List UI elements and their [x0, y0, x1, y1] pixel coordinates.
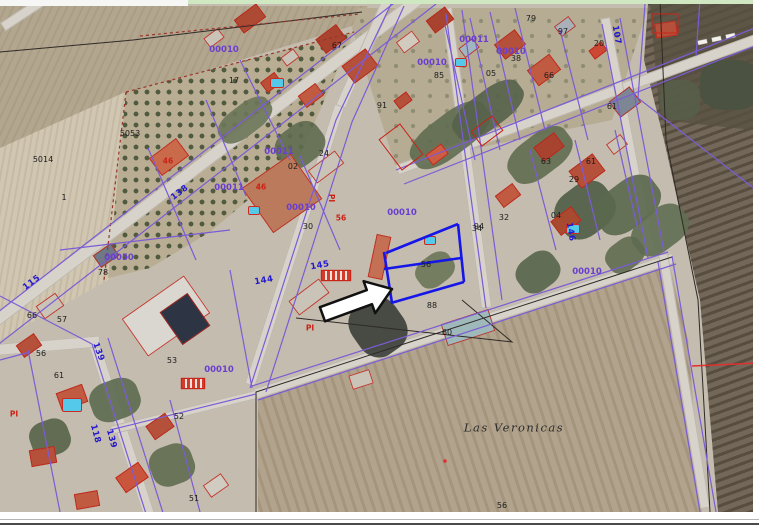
top-green-strip [188, 0, 753, 4]
map-label-56: 56 [421, 261, 431, 269]
map-label-las-veronicas: Las Veronicas [464, 422, 564, 434]
map-label-60: 60 [442, 329, 452, 337]
map-label-78: 78 [98, 269, 108, 277]
map-label-51: 51 [189, 495, 199, 503]
map-label-5053: 5053 [120, 130, 140, 138]
map-label-00011: 00011 [214, 184, 244, 193]
map-label-00011: 00011 [264, 148, 294, 157]
map-label-61: 61 [586, 158, 596, 166]
map-label-02: 02 [288, 163, 298, 171]
map-label-00010: 00010 [286, 204, 316, 213]
map-label-63: 63 [541, 158, 551, 166]
map-label-66: 66 [27, 312, 37, 320]
map-label-00050: 00050 [104, 254, 134, 263]
map-label-97: 97 [558, 28, 568, 36]
pointer-arrow [320, 281, 392, 321]
map-label-67: 67 [332, 42, 342, 50]
bottom-rule-light [0, 519, 759, 520]
map-label-32: 32 [499, 214, 509, 222]
map-label-91: 91 [377, 102, 387, 110]
map-label-pi: PI [327, 194, 335, 202]
top-white-strip [0, 0, 188, 6]
map-label-30: 30 [303, 223, 313, 231]
map-label-61: 61 [607, 103, 617, 111]
map-label-66: 66 [544, 72, 554, 80]
map-label-00010: 00010 [496, 48, 526, 57]
map-label-05: 05 [486, 70, 496, 78]
map-label-56: 56 [336, 214, 346, 222]
map-label-24: 24 [319, 150, 329, 158]
bottom-rule-dark [0, 523, 759, 525]
cadastral-map-viewport[interactable]: 5014505311767917997850538662061022463296… [0, 0, 759, 527]
map-label-52: 52 [174, 413, 184, 421]
map-label-57: 57 [57, 316, 67, 324]
map-label-00010: 00010 [417, 59, 447, 68]
map-label-34: 34 [472, 225, 482, 233]
map-label-88: 88 [427, 302, 437, 310]
map-label-46: 46 [256, 183, 266, 191]
map-label-107: 107 [610, 25, 622, 45]
map-label-00011: 00011 [459, 36, 489, 45]
map-label-pi: PI [10, 410, 18, 418]
right-margin [753, 0, 759, 527]
map-label-56: 56 [497, 502, 507, 510]
map-label-pi: PI [306, 324, 314, 332]
map-label-00010: 00010 [209, 46, 239, 55]
map-label-00010: 00010 [204, 366, 234, 375]
map-label-61: 61 [54, 372, 64, 380]
map-label-04: 04 [551, 212, 561, 220]
map-label-56: 56 [36, 350, 46, 358]
map-label-1: 1 [61, 194, 66, 202]
map-label-17: 17 [229, 77, 239, 85]
map-label-85: 85 [434, 72, 444, 80]
map-label-00010: 00010 [572, 268, 602, 277]
map-label-5014: 5014 [33, 156, 53, 164]
map-label-29: 29 [569, 176, 579, 184]
map-label-146: 146 [564, 222, 576, 242]
map-label-46: 46 [163, 157, 173, 165]
map-label-79: 79 [526, 15, 536, 23]
map-label-00010: 00010 [387, 209, 417, 218]
map-label-53: 53 [167, 357, 177, 365]
map-label-20: 20 [594, 40, 604, 48]
